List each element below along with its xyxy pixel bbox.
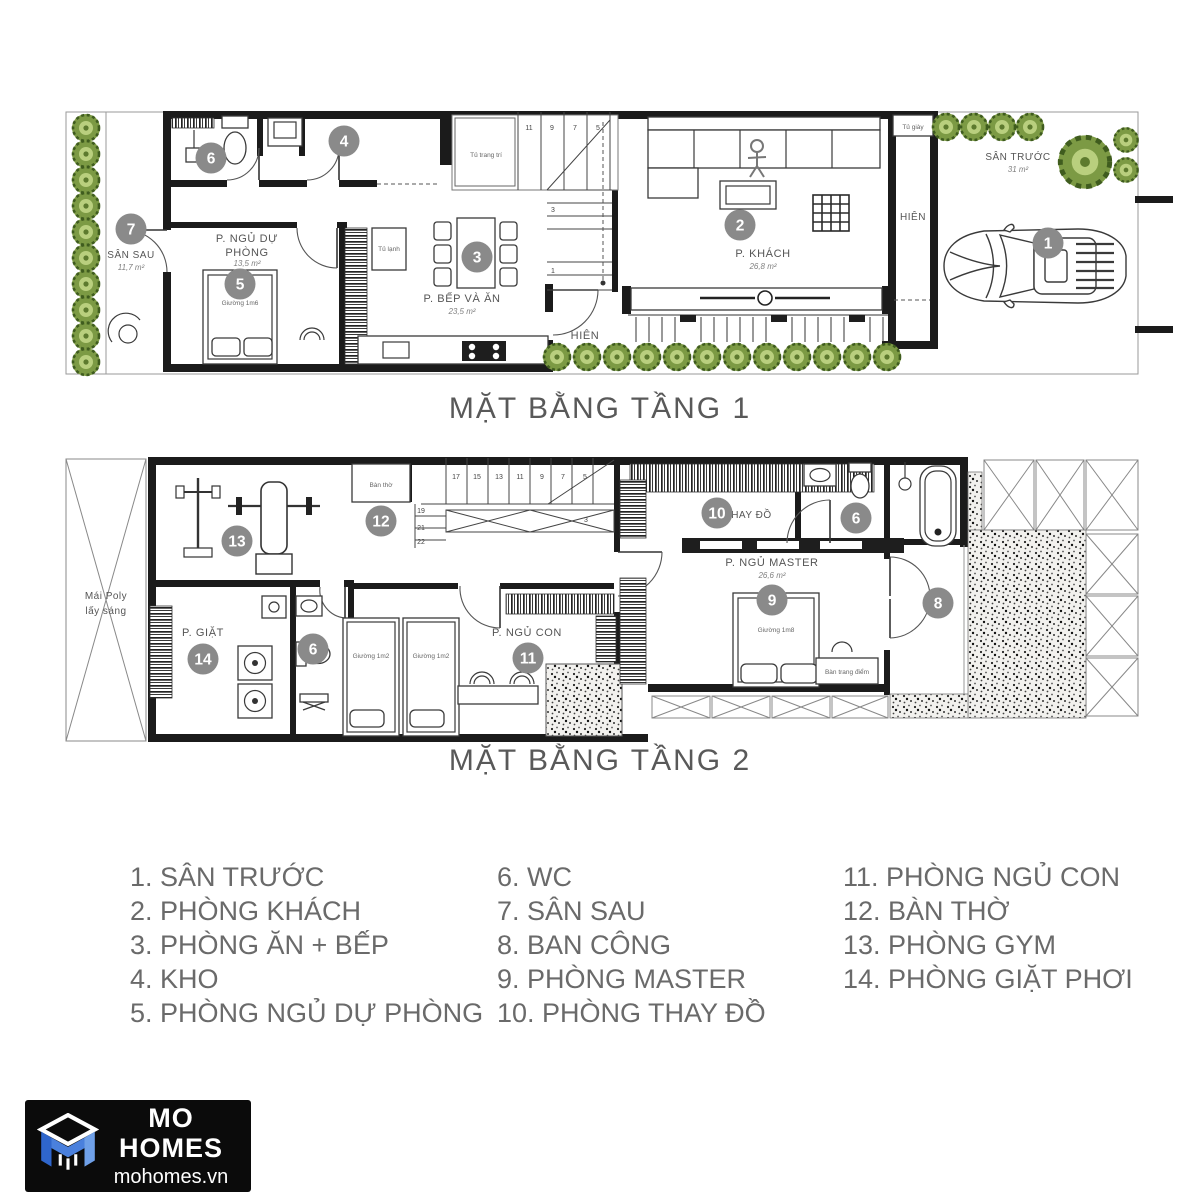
skylight-label-2: lấy sáng (85, 605, 126, 617)
wardrobe-icon (620, 578, 646, 684)
svg-text:9: 9 (768, 593, 777, 610)
bed-label: Giường 1m2 (413, 653, 450, 660)
kitchen-counter (358, 336, 548, 364)
room-area-khach: 26,8 m² (748, 262, 776, 271)
side-porch-label: HIÊN (900, 210, 926, 223)
legend-item: 5. PHÒNG NGỦ DỰ PHÒNG (130, 996, 483, 1030)
floor1-front-yard (932, 113, 1173, 333)
legend-item: 7. SÂN SAU (497, 894, 766, 928)
bed-label: Giường 1m6 (222, 300, 259, 307)
room-label-san-truoc: SÂN TRƯỚC (985, 150, 1050, 163)
logo-cube-icon (37, 1113, 99, 1179)
wardrobe-icon (620, 480, 646, 538)
svg-text:8: 8 (934, 596, 943, 613)
room-area-ngu-du-phong: 13,5 m² (233, 259, 260, 268)
skylight-label-1: Mái Poly (85, 591, 127, 602)
floor2-stairs (415, 458, 614, 548)
pillow-icon (410, 710, 444, 727)
room-marker-1: 1 (1033, 228, 1064, 259)
legend-item: 2. PHÒNG KHÁCH (130, 894, 483, 928)
svg-text:10: 10 (708, 506, 725, 523)
sink-icon (804, 464, 836, 486)
legend-item: 14. PHÒNG GIẶT PHƠI (843, 962, 1133, 996)
room-label-ngu-du-phong-2: PHÒNG (225, 246, 268, 259)
backyard-chair-icon (108, 313, 140, 343)
bed-label: Giường 1m2 (353, 653, 390, 660)
floor1-living-room (628, 117, 888, 342)
chair-icon (434, 245, 451, 263)
room-marker-5: 5 (225, 269, 256, 300)
room-marker-2: 2 (725, 210, 756, 241)
toilet-tank-icon (222, 116, 248, 128)
chair-icon (500, 222, 517, 240)
sofa-seats (648, 130, 880, 168)
legend-column-2: 6. WC 7. SÂN SAU 8. BAN CÔNG 9. PHÒNG MA… (497, 860, 766, 1030)
room-marker-12: 12 (366, 506, 397, 537)
legend-column-1: 1. SÂN TRƯỚC 2. PHÒNG KHÁCH 3. PHÒNG ĂN … (130, 860, 483, 1030)
floor1-wc-fixtures (172, 116, 302, 164)
stair-number: 7 (561, 474, 565, 481)
chair-icon (434, 222, 451, 240)
stair-number: 1 (551, 268, 555, 275)
floor-plans-canvas: SÂN SAU 11,7 m² P. NGỦ DỰ PHÒNG 13,5 m² … (0, 0, 1200, 760)
room-label-ngu-con: P. NGỦ CON (492, 626, 562, 639)
room-marker-10: 10 (702, 498, 733, 529)
stair-number: 11 (525, 125, 532, 132)
legend-item: 3. PHÒNG ĂN + BẾP (130, 928, 483, 962)
room-label-ngu-du-phong-1: P. NGỦ DỰ (216, 232, 278, 245)
shoe-cabinet-label: Tủ giày (902, 123, 924, 131)
sink-icon (296, 596, 322, 616)
svg-text:14: 14 (194, 652, 212, 669)
stair-number: 11 (516, 474, 523, 481)
floor1-left-garden-strip (66, 112, 106, 376)
drying-rack-icon (150, 606, 172, 698)
rug-icon (813, 195, 849, 231)
legend-item: 4. KHO (130, 962, 483, 996)
bed-label: Giường 1m8 (758, 627, 795, 634)
desk-icon (458, 686, 538, 704)
room-area-bep: 23,5 m² (447, 307, 475, 316)
stove-icon (462, 341, 506, 361)
stair-number: 9 (540, 474, 544, 481)
stair-number: 13 (495, 474, 503, 481)
stair-number: 7 (573, 125, 577, 132)
floor1-plan: SÂN SAU 11,7 m² P. NGỦ DỰ PHÒNG 13,5 m² … (66, 111, 1173, 376)
svg-text:6: 6 (852, 511, 861, 528)
porch-label: HIÊN (571, 329, 600, 342)
legend-item: 9. PHÒNG MASTER (497, 962, 766, 996)
room-marker-13: 13 (222, 526, 253, 557)
brand-logo: MO HOMES mohomes.vn (25, 1100, 251, 1192)
pillow-icon (350, 710, 384, 727)
room-marker-6a: 6 (298, 634, 329, 665)
coffee-table-icon (720, 181, 776, 209)
altar-label: Bàn thờ (369, 482, 393, 489)
room-area-san-sau: 11,7 m² (118, 263, 145, 272)
stair-number: 15 (473, 474, 481, 481)
wardrobe-icon (596, 616, 616, 662)
wardrobe-icon (630, 464, 874, 492)
room-label-khach: P. KHÁCH (735, 247, 790, 260)
iron-board-icon (300, 694, 328, 702)
room-marker-7: 7 (116, 214, 147, 245)
gate-post (1135, 196, 1173, 203)
legend-item: 8. BAN CÔNG (497, 928, 766, 962)
void-skylight (546, 664, 622, 736)
room-marker-6b: 6 (841, 503, 872, 534)
room-label-bep: P. BẾP VÀ ĂN (423, 292, 500, 305)
page: SÂN SAU 11,7 m² P. NGỦ DỰ PHÒNG 13,5 m² … (0, 0, 1200, 1200)
legend-item: 6. WC (497, 860, 766, 894)
floor1-title: MẶT BẰNG TẦNG 1 (0, 392, 1200, 426)
chair-icon (500, 268, 517, 286)
room-label-master: P. NGỦ MASTER (725, 556, 818, 569)
toilet-tank-icon (849, 463, 871, 472)
svg-text:7: 7 (127, 222, 136, 239)
room-marker-14: 14 (188, 644, 219, 675)
floor2-plan: Mái Poly lấy sáng Bàn thờ P. GIẶT Giường… (66, 457, 1138, 742)
gate-post (1135, 326, 1173, 333)
svg-text:6: 6 (207, 151, 216, 168)
shower-icon (899, 478, 911, 490)
chair-icon (500, 245, 517, 263)
stair-number: 3 (584, 517, 588, 524)
floor1-front-hedge (543, 343, 901, 371)
svg-text:6: 6 (309, 642, 318, 659)
room-label-giat: P. GIẶT (182, 626, 224, 639)
legend-item: 11. PHÒNG NGỦ CON (843, 860, 1133, 894)
floor2-title: MẶT BẰNG TẦNG 2 (0, 744, 1200, 778)
svg-text:3: 3 (473, 250, 482, 267)
stair-number: 22 (417, 539, 425, 546)
sofa-back (648, 117, 880, 130)
room-area-san-truoc: 31 m² (1008, 165, 1029, 174)
room-marker-11: 11 (513, 643, 544, 674)
legend-item: 1. SÂN TRƯỚC (130, 860, 483, 894)
louver-window (628, 315, 888, 342)
stair-number: 3 (551, 207, 555, 214)
svg-text:13: 13 (228, 534, 246, 551)
wardrobe-icon (506, 594, 614, 614)
svg-text:2: 2 (736, 218, 745, 235)
legend-item: 12. BÀN THỜ (843, 894, 1133, 928)
gym-station-base (184, 548, 212, 557)
legend-item: 10. PHÒNG THAY ĐỒ (497, 996, 766, 1030)
stair-number: 17 (452, 474, 460, 481)
legend-column-3: 11. PHÒNG NGỦ CON 12. BÀN THỜ 13. PHÒNG … (843, 860, 1133, 996)
stool-icon (832, 642, 852, 652)
pillow-icon (741, 664, 777, 683)
toilet-icon (851, 474, 869, 498)
stair-number: 9 (550, 125, 554, 132)
logo-brand-name: MO HOMES (99, 1104, 243, 1163)
towel-rack-icon (172, 118, 214, 128)
svg-text:12: 12 (372, 514, 389, 531)
floor2-deck-band (652, 696, 888, 718)
chair-icon (434, 268, 451, 286)
room-marker-6: 6 (196, 143, 227, 174)
stair-number: 19 (417, 508, 425, 515)
toilet-icon (224, 132, 246, 164)
room-marker-8: 8 (923, 588, 954, 619)
vanity-label: Bàn trang điểm (825, 668, 869, 676)
floor2-master-wc (804, 462, 956, 546)
room-marker-4: 4 (329, 126, 360, 157)
room-label-san-sau: SÂN SAU (107, 248, 154, 261)
decor-cabinet-label: Tủ trang trí (470, 151, 502, 159)
stair-number: 5 (596, 125, 600, 132)
fridge-label: Tủ lạnh (378, 245, 400, 253)
tv-console (631, 288, 882, 310)
svg-text:4: 4 (340, 134, 349, 151)
legend-item: 13. PHÒNG GYM (843, 928, 1133, 962)
stair-number: 21 (417, 525, 425, 532)
pillow-icon (244, 338, 272, 356)
svg-text:11: 11 (520, 651, 537, 668)
svg-text:5: 5 (236, 277, 245, 294)
room-marker-3: 3 (462, 242, 493, 273)
room-marker-9: 9 (757, 585, 788, 616)
laundry-sink-icon (262, 596, 286, 618)
pillow-icon (212, 338, 240, 356)
logo-website: mohomes.vn (99, 1166, 243, 1188)
floor2-kids-bedroom (343, 594, 622, 736)
sofa-chaise (648, 168, 698, 198)
stair-number: 5 (583, 474, 587, 481)
svg-text:1: 1 (1044, 236, 1053, 253)
room-area-master: 26,6 m² (757, 571, 785, 580)
pillow-icon (781, 664, 817, 683)
logo-text: MO HOMES mohomes.vn (99, 1104, 243, 1188)
gym-bench (261, 482, 287, 554)
floor2-gym (176, 478, 320, 574)
